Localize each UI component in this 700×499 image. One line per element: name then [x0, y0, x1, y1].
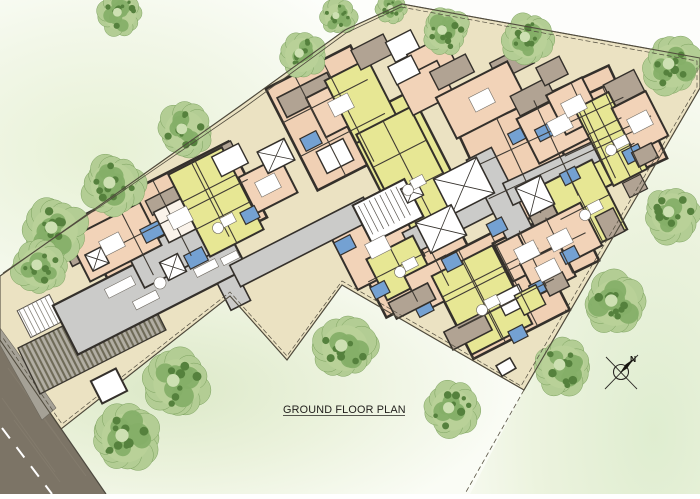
- svg-text:N: N: [630, 354, 636, 364]
- svg-text:GROUND FLOOR PLAN: GROUND FLOOR PLAN: [283, 404, 406, 416]
